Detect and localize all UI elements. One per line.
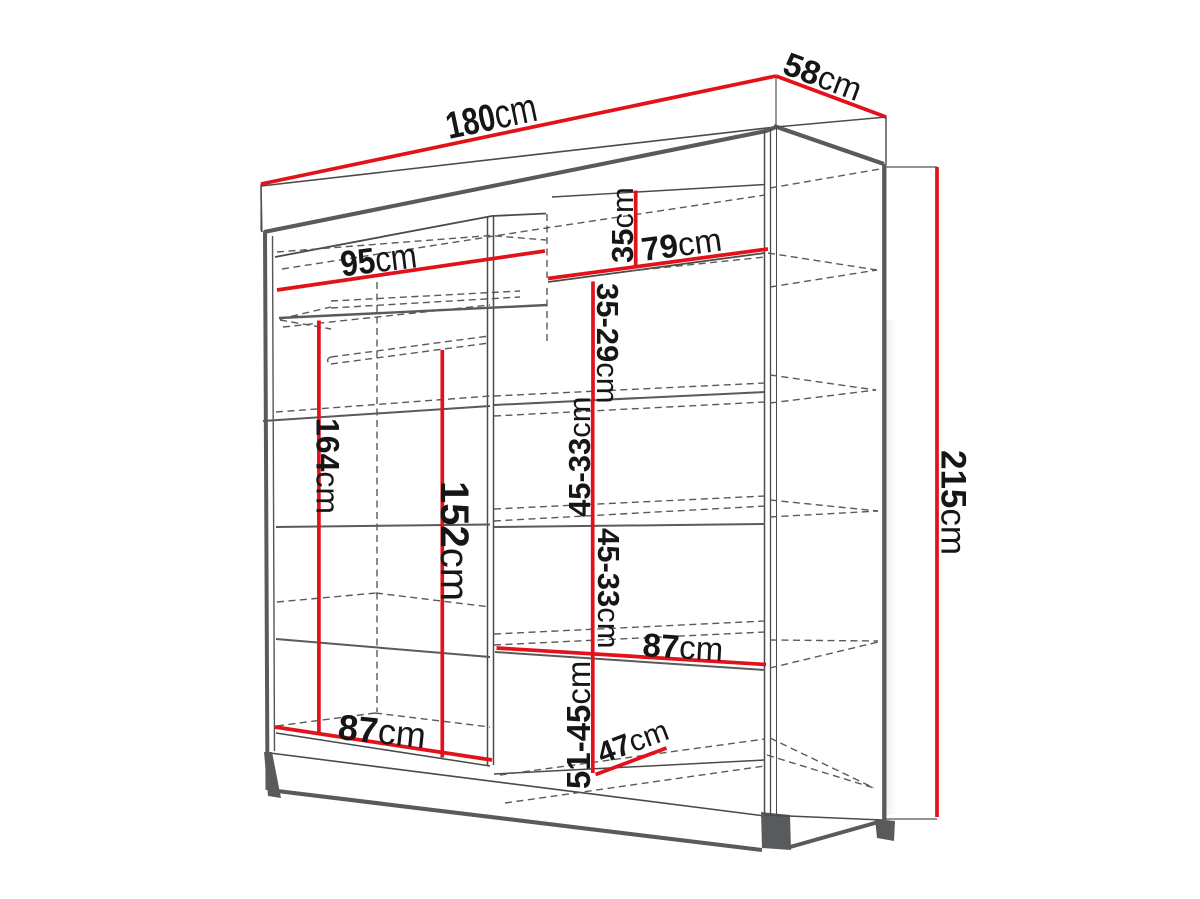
svg-text:87cm: 87cm [642,626,725,668]
svg-text:95cm: 95cm [338,235,419,285]
svg-text:164cm: 164cm [310,418,346,514]
svg-text:45-33cm: 45-33cm [591,528,626,649]
svg-text:58cm: 58cm [779,45,868,108]
svg-text:215cm: 215cm [934,450,973,555]
svg-text:45-33cm: 45-33cm [562,396,597,517]
svg-text:35-29cm: 35-29cm [590,283,625,404]
svg-text:51-45cm: 51-45cm [560,661,597,789]
svg-text:152cm: 152cm [432,481,476,601]
svg-text:35cm: 35cm [605,187,640,263]
svg-text:87cm: 87cm [336,706,428,756]
svg-text:180cm: 180cm [441,84,540,148]
